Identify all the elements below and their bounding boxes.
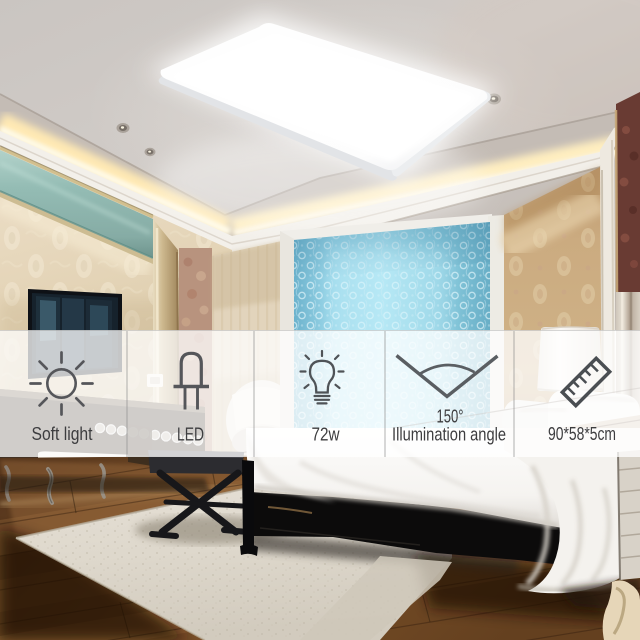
svg-text:90*58*5cm: 90*58*5cm xyxy=(548,423,616,444)
svg-text:72w: 72w xyxy=(312,424,341,445)
svg-text:Illumination angle: Illumination angle xyxy=(392,424,506,445)
svg-text:LED: LED xyxy=(177,424,204,445)
svg-text:Soft light: Soft light xyxy=(32,423,93,444)
